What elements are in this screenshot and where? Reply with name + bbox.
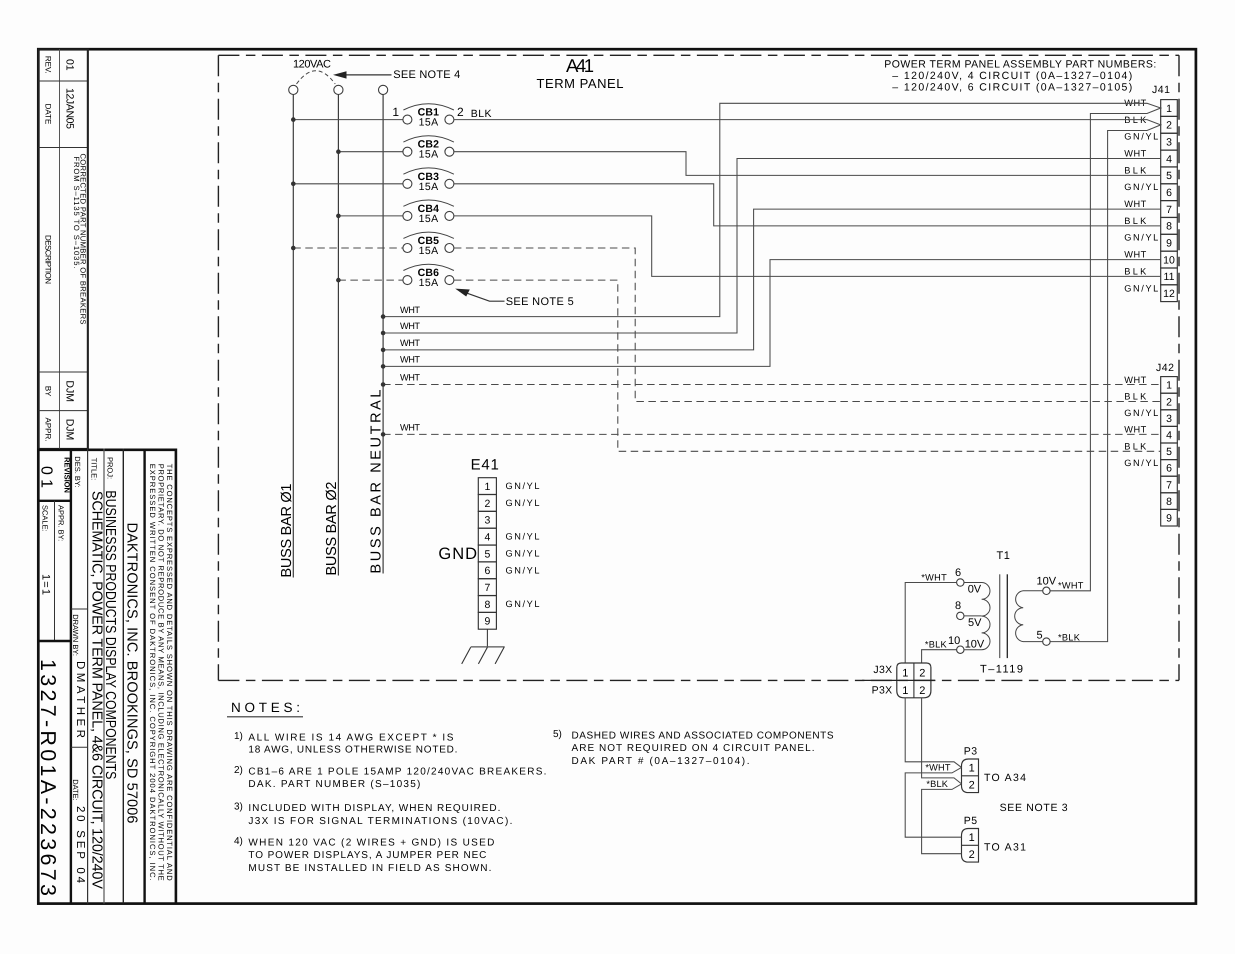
svg-text:T1: T1 [997,550,1011,562]
svg-text:P3: P3 [964,745,978,757]
svg-text:2: 2 [1166,120,1172,132]
svg-text:2: 2 [969,779,975,791]
svg-text:J3X IS FOR SIGNAL TERMINATIONS: J3X IS FOR SIGNAL TERMINATIONS (10VAC). [248,816,512,827]
svg-text:DAK. PART NUMBER (S–1035): DAK. PART NUMBER (S–1035) [248,779,420,790]
svg-text:5): 5) [553,729,562,740]
svg-text:1: 1 [969,763,975,775]
svg-text:DESCRIPTION: DESCRIPTION [44,235,53,284]
svg-text:8: 8 [1166,496,1172,508]
svg-text:120VAC: 120VAC [293,59,331,71]
svg-text:WHT: WHT [400,321,420,331]
svg-text:8: 8 [484,599,490,611]
svg-text:8: 8 [955,600,961,612]
svg-text:1): 1) [234,731,243,742]
svg-text:GN/YL: GN/YL [506,481,540,491]
svg-text:DRAWN BY:: DRAWN BY: [71,614,80,656]
svg-text:4: 4 [1166,153,1172,165]
svg-text:10: 10 [948,635,960,647]
svg-text:8: 8 [1166,221,1172,233]
svg-text:GN/YL: GN/YL [1124,458,1158,468]
svg-text:15A: 15A [419,245,439,257]
svg-text:*WHT: *WHT [921,573,947,583]
svg-text:J3X: J3X [873,664,892,676]
svg-text:– 120/240V, 6 CIRCUIT (0A–132: – 120/240V, 6 CIRCUIT (0A–1327–0105) [892,81,1132,93]
svg-text:SEE NOTE 3: SEE NOTE 3 [1000,802,1068,814]
svg-text:WHT: WHT [400,355,420,365]
svg-text:1: 1 [1166,103,1172,115]
svg-text:10V: 10V [1037,576,1057,588]
svg-text:WHT: WHT [400,423,420,433]
svg-text:WHT: WHT [1124,425,1146,435]
svg-text:6: 6 [955,567,961,579]
svg-text:ARE NOT REQUIRED ON 4 CIRCUIT: ARE NOT REQUIRED ON 4 CIRCUIT PANEL. [572,743,815,754]
svg-text:APPR. BY:: APPR. BY: [57,505,66,541]
svg-text:0V: 0V [968,584,982,596]
svg-text:WHT: WHT [1124,199,1146,209]
svg-text:GND: GND [438,545,478,563]
svg-text:GN/YL: GN/YL [506,565,540,575]
svg-text:GN/YL: GN/YL [1124,283,1158,293]
svg-text:6: 6 [484,565,490,577]
svg-text:2: 2 [919,668,925,680]
svg-text:4: 4 [1166,430,1172,442]
svg-text:*BLK: *BLK [925,640,948,650]
svg-text:CB1–6 ARE 1 POLE 15AMP 120/240: CB1–6 ARE 1 POLE 15AMP 120/240VAC BREAKE… [248,766,546,777]
svg-text:REV.: REV. [44,56,53,74]
svg-text:POWER TERM PANEL ASSEMBLY PART: POWER TERM PANEL ASSEMBLY PART NUMBERS: [884,59,1156,71]
svg-text:1: 1 [484,481,490,493]
svg-text:REVISION: REVISION [63,457,72,493]
svg-text:FROM S–1135 TO S–1035.: FROM S–1135 TO S–1035. [72,157,81,269]
svg-text:DJM: DJM [64,419,76,441]
svg-text:BUSS BAR Ø2: BUSS BAR Ø2 [324,482,340,576]
svg-text:WHT: WHT [400,305,420,315]
svg-text:*BLK: *BLK [1058,633,1081,643]
svg-text:3: 3 [484,515,490,527]
svg-text:3: 3 [1166,413,1172,425]
svg-text:SEE NOTE 5: SEE NOTE 5 [506,296,574,308]
svg-text:SCHEMATIC, POWER TERM PANEL, 4: SCHEMATIC, POWER TERM PANEL, 4&6 CIRCUIT… [89,491,105,889]
svg-text:DASHED WIRES AND ASSOCIATED CO: DASHED WIRES AND ASSOCIATED COMPONENTS [572,730,834,741]
svg-text:GN/YL: GN/YL [506,532,540,542]
svg-text:MUST BE INSTALLED IN FIELD AS: MUST BE INSTALLED IN FIELD AS SHOWN. [248,863,491,874]
svg-text:TERM PANEL: TERM PANEL [537,76,624,91]
svg-text:BLK: BLK [1124,441,1147,451]
svg-text:15A: 15A [419,149,439,161]
svg-text:A41: A41 [566,55,594,76]
svg-text:GN/YL: GN/YL [1124,233,1158,243]
svg-text:WHT: WHT [1124,250,1146,260]
svg-text:GN/YL: GN/YL [506,599,540,609]
svg-text:1: 1 [902,685,908,697]
svg-text:6: 6 [1166,187,1172,199]
svg-text:1: 1 [1166,380,1172,392]
svg-text:SEE NOTE 4: SEE NOTE 4 [393,69,460,81]
svg-text:E41: E41 [471,457,500,474]
svg-text:5: 5 [484,548,490,560]
svg-text:18 AWG, UNLESS OTHERWISE NOTED: 18 AWG, UNLESS OTHERWISE NOTED. [248,745,457,756]
svg-text:WHT: WHT [400,338,420,348]
svg-text:10V: 10V [965,638,985,650]
svg-text:11: 11 [1164,271,1175,283]
svg-text:*WHT: *WHT [1058,581,1084,591]
svg-text:DES. BY:: DES. BY: [73,456,82,487]
svg-text:TO POWER DISPLAYS, A JUMPER PE: TO POWER DISPLAYS, A JUMPER PER NEC [248,850,486,861]
svg-text:2): 2) [234,765,243,776]
svg-text:12JAN05: 12JAN05 [64,88,76,129]
svg-text:9: 9 [1166,238,1172,250]
svg-text:1: 1 [902,668,908,680]
svg-text:– 120/240V, 4 CIRCUIT (0A–132: – 120/240V, 4 CIRCUIT (0A–1327–0104) [892,70,1132,82]
svg-text:BUSINESSS PRODUCTS DISPLAY COM: BUSINESSS PRODUCTS DISPLAY COMPONENTS [102,490,118,779]
svg-text:9: 9 [484,616,490,628]
svg-text:J42: J42 [1156,362,1174,374]
svg-text:20 SEP 04: 20 SEP 04 [74,806,86,884]
svg-text:3: 3 [1166,137,1172,149]
svg-text:15A: 15A [419,213,439,225]
svg-text:5V: 5V [968,617,982,629]
svg-text:BLK: BLK [1124,392,1147,402]
svg-text:5: 5 [1166,446,1172,458]
svg-text:12: 12 [1163,288,1175,300]
svg-text:15A: 15A [419,117,439,129]
svg-text:6: 6 [1166,463,1172,475]
svg-text:BY: BY [44,386,53,397]
svg-text:TITLE:: TITLE: [90,458,99,481]
svg-text:DATE:: DATE: [71,779,80,801]
svg-text:10: 10 [1163,254,1175,266]
svg-text:4): 4) [234,836,243,847]
svg-text:SCALE:: SCALE: [41,505,50,532]
svg-text:GN/YL: GN/YL [1124,132,1158,142]
svg-text:INCLUDED WITH DISPLAY, WHEN RE: INCLUDED WITH DISPLAY, WHEN REQUIRED. [248,803,500,814]
svg-text:BLK: BLK [1124,266,1147,276]
svg-text:GN/YL: GN/YL [1124,408,1158,418]
svg-text:3): 3) [234,802,243,813]
svg-text:2: 2 [919,685,925,697]
svg-text:1: 1 [969,832,975,844]
svg-text:DJM: DJM [64,380,76,402]
svg-text:BLK: BLK [1124,216,1147,226]
svg-text:WHT: WHT [400,373,420,383]
svg-text:PROJ:: PROJ: [106,457,115,479]
svg-text:15A: 15A [419,277,439,289]
svg-text:5: 5 [1166,170,1172,182]
svg-text:01: 01 [64,59,76,71]
svg-text:4: 4 [484,531,490,543]
svg-text:DAKTRONICS, INC. BROOKINGS,: DAKTRONICS, INC. BROOKINGS, SD 57006 [123,523,139,824]
svg-text:P5: P5 [964,815,978,827]
svg-text:7: 7 [1166,479,1172,491]
svg-text:WHT: WHT [1124,375,1146,385]
svg-text:1: 1 [392,105,399,119]
svg-text:EXPRESSED WRITTEN CONSENT OF D: EXPRESSED WRITTEN CONSENT OF DAKTRONICS,… [148,464,157,881]
svg-text:J41: J41 [1152,84,1170,96]
svg-text:*BLK: *BLK [926,779,948,789]
svg-text:GN/YL: GN/YL [1124,182,1158,192]
svg-text:2: 2 [1166,396,1172,408]
svg-text:15A: 15A [419,181,439,193]
svg-text:BLK: BLK [1124,165,1147,175]
svg-text:GN/YL: GN/YL [506,549,540,559]
svg-text:BUSS BAR Ø1: BUSS BAR Ø1 [279,484,295,578]
svg-text:9: 9 [1166,513,1172,525]
svg-text:WHT: WHT [1124,149,1146,159]
svg-text:7: 7 [1166,204,1172,216]
svg-text:1=1: 1=1 [40,574,52,595]
svg-text:7: 7 [484,582,490,594]
svg-text:APPR.: APPR. [44,417,53,441]
svg-text:P3X: P3X [872,684,893,696]
svg-text:2: 2 [969,849,975,861]
svg-text:2: 2 [457,105,464,119]
svg-text:5: 5 [1037,630,1043,642]
svg-text:*WHT: *WHT [925,763,950,773]
svg-text:ALL WIRE IS 14 AWG EXCEPT * IS: ALL WIRE IS 14 AWG EXCEPT * IS [248,732,453,743]
svg-text:BLK: BLK [471,108,492,120]
svg-text:2: 2 [484,498,490,510]
svg-text:GN/YL: GN/YL [506,498,540,508]
svg-text:DATE: DATE [44,104,53,125]
